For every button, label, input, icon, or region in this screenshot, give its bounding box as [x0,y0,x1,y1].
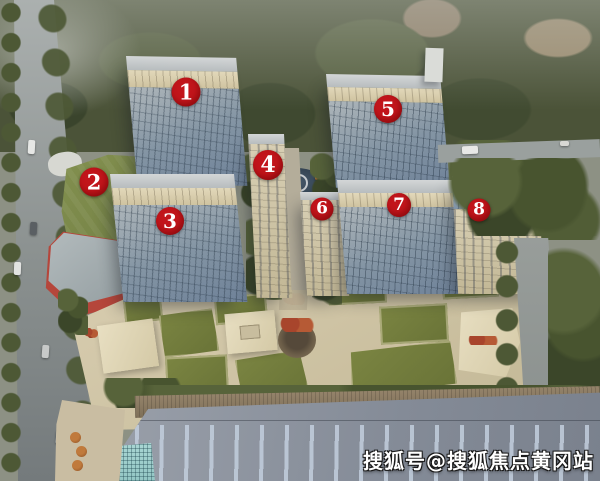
marker-1: 1 [172,78,201,107]
marker-7: 7 [387,193,411,217]
marker-3: 3 [156,207,184,235]
watermark: 搜狐号@搜狐焦点黄冈站 [363,445,594,474]
markers-layer: 12345678 [0,0,600,481]
marker-6: 6 [311,198,334,221]
aerial-rendering: 12345678 搜狐号@搜狐焦点黄冈站 [0,0,600,481]
marker-8: 8 [468,199,491,222]
marker-5: 5 [374,95,402,123]
marker-2: 2 [80,168,109,197]
marker-4: 4 [253,150,283,180]
